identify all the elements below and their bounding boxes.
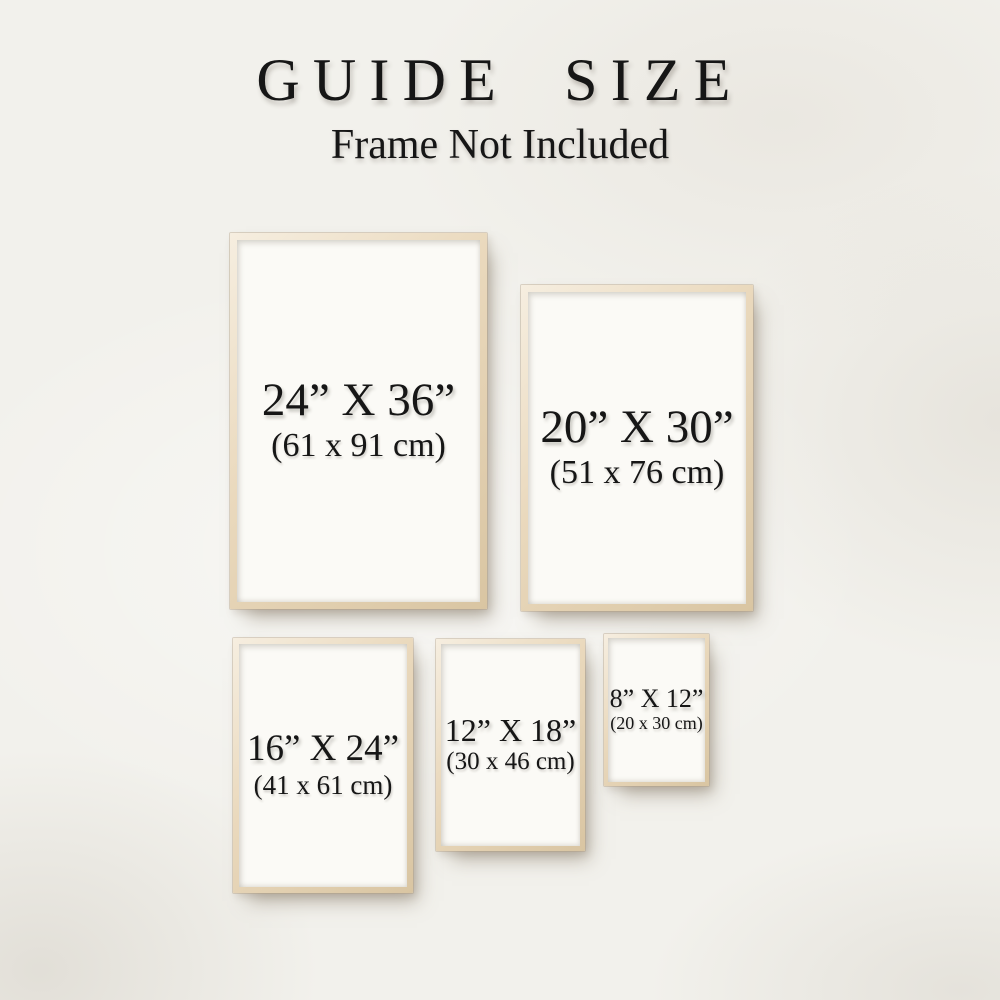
size-inches-label: 20” X 30”: [540, 402, 733, 453]
size-cm-label: (51 x 76 cm): [550, 453, 725, 494]
frame-20x30: 20” X 30” (51 x 76 cm): [521, 285, 753, 611]
frame-8x12: 8” X 12” (20 x 30 cm): [604, 634, 709, 786]
frame-24x36: 24” X 36” (61 x 91 cm): [230, 233, 487, 609]
size-guide-image: GUIDE SIZE Frame Not Included 24” X 36” …: [0, 0, 1000, 1000]
size-inches-label: 12” X 18”: [445, 713, 577, 748]
poster-20x30: 20” X 30” (51 x 76 cm): [528, 292, 746, 604]
size-inches-label: 8” X 12”: [610, 685, 704, 713]
size-cm-label: (61 x 91 cm): [271, 426, 446, 467]
poster-12x18: 12” X 18” (30 x 46 cm): [441, 644, 580, 846]
size-cm-label: (41 x 61 cm): [254, 769, 393, 801]
size-cm-label: (20 x 30 cm): [610, 713, 702, 735]
poster-16x24: 16” X 24” (41 x 61 cm): [239, 644, 407, 887]
page-title: GUIDE SIZE: [0, 50, 1000, 110]
poster-8x12: 8” X 12” (20 x 30 cm): [608, 638, 705, 782]
header: GUIDE SIZE Frame Not Included: [0, 50, 1000, 166]
size-cm-label: (30 x 46 cm): [446, 747, 574, 777]
poster-24x36: 24” X 36” (61 x 91 cm): [237, 240, 480, 602]
frame-12x18: 12” X 18” (30 x 46 cm): [436, 639, 585, 851]
size-inches-label: 16” X 24”: [247, 729, 399, 769]
size-inches-label: 24” X 36”: [262, 375, 455, 426]
frame-16x24: 16” X 24” (41 x 61 cm): [233, 638, 413, 893]
page-subtitle: Frame Not Included: [0, 124, 1000, 166]
